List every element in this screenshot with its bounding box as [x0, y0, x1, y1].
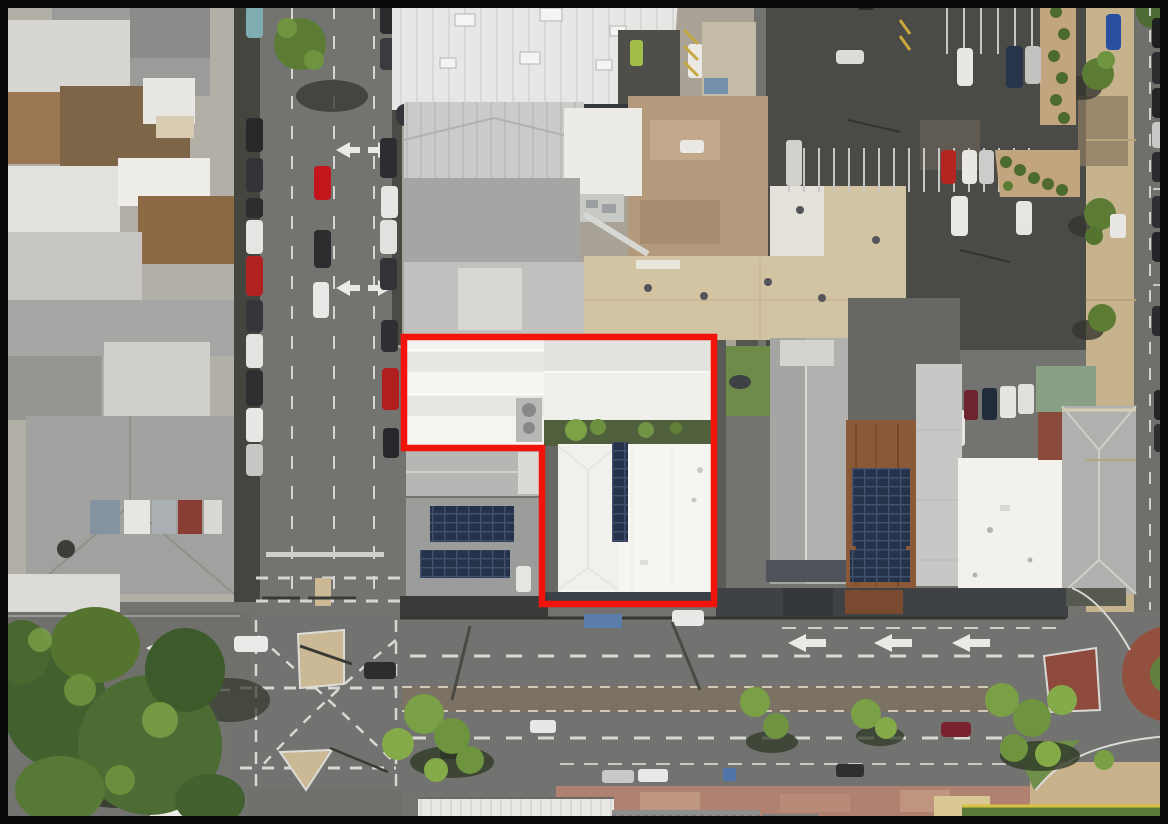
bush: [1050, 94, 1062, 106]
car: [786, 140, 802, 186]
car: [836, 50, 864, 64]
car: [1018, 384, 1034, 414]
car: [1106, 14, 1121, 50]
car: [964, 390, 978, 420]
tree: [638, 422, 654, 438]
car: [957, 48, 973, 86]
tree: [875, 717, 897, 739]
photo-border-edge: [0, 0, 1168, 8]
ac-unit: [764, 278, 772, 286]
ac-unit: [602, 204, 616, 213]
tree: [15, 756, 105, 824]
bush: [1014, 164, 1026, 176]
stop-line: [266, 552, 384, 557]
paving-patch: [780, 794, 850, 812]
awning: [156, 116, 194, 138]
car: [638, 769, 668, 782]
car: [364, 662, 396, 679]
car: [979, 150, 994, 184]
aerial-photo: [0, 0, 1168, 824]
tree: [1088, 304, 1116, 332]
tree: [28, 628, 52, 652]
car: [383, 428, 399, 458]
roof-vent: [520, 52, 540, 64]
ac-fan: [522, 403, 536, 417]
car: [246, 158, 263, 192]
bush: [1056, 72, 1068, 84]
car: [1000, 386, 1016, 418]
roof-vent: [987, 527, 993, 533]
roof: [458, 268, 522, 330]
roof-slope: [544, 340, 714, 372]
accessible-bay: [704, 78, 728, 94]
car: [836, 764, 864, 777]
bush: [1028, 172, 1040, 184]
solar-array: [420, 550, 510, 578]
roof-patch: [152, 500, 176, 534]
alley-shadow: [544, 446, 558, 592]
car: [602, 770, 634, 783]
bush: [1003, 181, 1013, 191]
tree: [1097, 51, 1115, 69]
satellite-dish: [57, 540, 75, 558]
car: [380, 220, 397, 254]
solar-array: [612, 442, 628, 542]
car: [1016, 201, 1032, 235]
car: [380, 138, 397, 178]
bush: [1048, 50, 1060, 62]
ac-unit: [818, 294, 826, 302]
roof: [916, 364, 962, 586]
tree: [565, 419, 587, 441]
roof-slope: [770, 338, 806, 584]
roof-vent: [596, 60, 612, 70]
roof-vent: [973, 573, 978, 578]
roof: [404, 102, 584, 180]
shopfront-awning: [783, 588, 833, 616]
shopfront-awning: [400, 596, 548, 618]
tree: [1000, 734, 1028, 762]
tree: [142, 702, 178, 738]
skylight: [636, 260, 680, 269]
roof: [104, 342, 210, 420]
roof: [780, 340, 834, 366]
roof: [0, 232, 142, 302]
ac-unit: [644, 284, 652, 292]
roof: [1038, 412, 1064, 460]
roof-slope: [406, 352, 544, 372]
ac-unit: [796, 206, 804, 214]
car: [672, 610, 704, 626]
roof-vent: [440, 58, 456, 68]
solar-array: [856, 546, 906, 572]
car: [1110, 214, 1126, 238]
bush: [1058, 112, 1070, 124]
car: [951, 196, 968, 236]
worn-asphalt: [1078, 96, 1128, 166]
bush: [1058, 28, 1070, 40]
car: [246, 334, 263, 368]
painted-bay: [584, 614, 622, 628]
tree: [382, 728, 414, 760]
tree-shadow: [296, 80, 368, 112]
roof-patch: [178, 500, 202, 534]
bush: [1056, 184, 1068, 196]
roof-vent: [540, 8, 562, 21]
traffic-island: [315, 578, 331, 606]
rust-wall: [845, 590, 903, 614]
car: [246, 408, 263, 442]
roof-vent: [1000, 505, 1010, 511]
tree: [740, 687, 770, 717]
car: [246, 300, 263, 332]
car: [382, 368, 399, 410]
gravel-patch: [640, 200, 720, 244]
car: [246, 198, 263, 218]
roof: [404, 178, 580, 264]
roof-vent: [1028, 558, 1033, 563]
tree: [670, 422, 682, 434]
tree: [763, 713, 789, 739]
car: [941, 150, 956, 184]
gable-cap: [766, 560, 846, 582]
sign-marking: [723, 768, 736, 781]
ac-fan: [523, 422, 535, 434]
car: [729, 375, 751, 389]
roof: [0, 356, 102, 420]
tree: [456, 746, 484, 774]
roof-vent: [455, 14, 475, 26]
solar-array: [852, 468, 910, 546]
photo-border-edge: [0, 816, 1168, 824]
tree: [985, 683, 1019, 717]
roof-vent: [640, 560, 648, 565]
bush: [1042, 178, 1054, 190]
car: [246, 370, 263, 406]
ac-unit: [872, 236, 880, 244]
roof-patch: [204, 500, 222, 534]
roof-patch: [124, 500, 150, 534]
car: [246, 444, 263, 476]
tree: [1085, 227, 1103, 245]
car: [680, 140, 704, 153]
car: [246, 118, 263, 152]
aerial-photo-frame: [0, 0, 1168, 824]
car: [314, 166, 331, 200]
tree: [50, 607, 140, 683]
car: [630, 40, 643, 66]
alley-shadow: [716, 340, 726, 590]
landscape-strip: [1040, 0, 1076, 125]
solar-array: [430, 506, 514, 542]
tree: [1013, 699, 1051, 737]
median: [402, 686, 1014, 712]
car: [530, 720, 556, 733]
tree: [1094, 750, 1114, 770]
car: [246, 256, 263, 296]
car: [246, 6, 263, 38]
photo-border-edge: [0, 0, 8, 824]
paving-patch: [640, 792, 700, 812]
car: [962, 150, 977, 184]
roof-vent: [697, 467, 703, 473]
tree: [145, 628, 225, 712]
car: [313, 282, 329, 318]
car: [380, 258, 397, 290]
car: [941, 722, 971, 737]
roof: [1036, 366, 1096, 412]
ac-unit: [586, 200, 598, 208]
tree: [304, 50, 324, 70]
tree: [1047, 685, 1077, 715]
car: [246, 220, 263, 254]
bush: [1000, 156, 1012, 168]
tree: [277, 18, 297, 38]
roof-patch: [90, 500, 120, 534]
roof: [518, 452, 540, 494]
roof: [0, 166, 120, 232]
car: [1006, 46, 1023, 88]
tree: [64, 674, 96, 706]
car: [234, 636, 268, 652]
roof: [138, 196, 236, 264]
tree: [424, 758, 448, 782]
ac-unit: [700, 292, 708, 300]
tree: [590, 419, 606, 435]
car: [1025, 46, 1041, 84]
roof: [0, 92, 60, 164]
roof-vent: [692, 498, 697, 503]
roof: [770, 186, 824, 256]
tree: [1035, 741, 1061, 767]
photo-border-edge: [1160, 0, 1168, 824]
tree: [105, 765, 135, 795]
car: [516, 566, 531, 592]
roof: [130, 0, 210, 58]
car: [381, 320, 398, 352]
photo-content: [0, 0, 1168, 824]
car: [982, 388, 997, 420]
roof: [0, 574, 120, 612]
car: [381, 186, 398, 218]
car: [314, 230, 331, 268]
